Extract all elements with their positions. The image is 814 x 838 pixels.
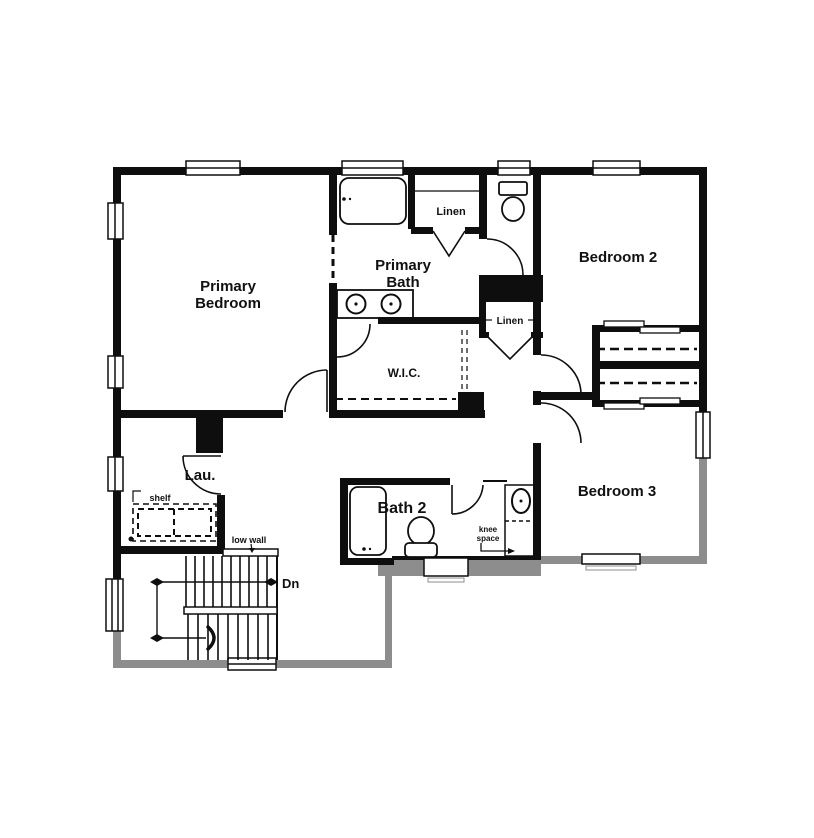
window-left-3 bbox=[108, 457, 123, 491]
window-right bbox=[696, 412, 710, 458]
bath2-door bbox=[452, 485, 483, 514]
window-sill-bedroom3 bbox=[586, 566, 636, 570]
toilet-bath2-icon bbox=[405, 517, 437, 557]
stairs-direction-chevron bbox=[208, 627, 214, 649]
bedroom3-label: Bedroom 3 bbox=[578, 483, 656, 500]
primary-bedroom-label-line1: Primary bbox=[200, 278, 257, 295]
window-top-2 bbox=[342, 161, 403, 175]
primary-bedroom-door bbox=[285, 370, 327, 412]
window-sill-below-bath2 bbox=[428, 578, 464, 582]
knee-space-label-line2: space bbox=[477, 534, 500, 543]
window-top-4 bbox=[593, 161, 640, 175]
low-wall-label: low wall bbox=[232, 535, 267, 545]
window-top-1 bbox=[186, 161, 240, 175]
floor-plan-drawing: Primary Bedroom Primary Bath Linen Bedro… bbox=[0, 0, 814, 838]
fixtures bbox=[337, 178, 537, 557]
primary-bath-label-line2: Bath bbox=[386, 274, 419, 291]
window-left-4-double bbox=[106, 579, 123, 631]
linen-top-label: Linen bbox=[436, 206, 466, 218]
laundry-shelf bbox=[129, 491, 217, 542]
primary-bedroom-label-line2: Bedroom bbox=[195, 295, 261, 312]
bedroom3-door bbox=[541, 403, 581, 443]
toilet-wc-icon bbox=[499, 182, 527, 221]
window-bedroom3-bottom bbox=[582, 554, 640, 564]
stairs-landing bbox=[184, 607, 277, 614]
knee-space-vanity-icon bbox=[505, 485, 537, 556]
knee-space-label-line1: knee bbox=[479, 525, 498, 534]
window-top-3 bbox=[498, 161, 530, 175]
wic-label: W.I.C. bbox=[388, 366, 421, 380]
stairs-down-label: Dn bbox=[282, 576, 299, 591]
wic-opening-dashed bbox=[462, 330, 467, 390]
stairs bbox=[150, 549, 278, 660]
bathtub-primary-icon bbox=[340, 178, 406, 224]
window-below-bath2 bbox=[424, 558, 468, 576]
shelf-label: shelf bbox=[149, 493, 171, 503]
linen-mid-label: Linen bbox=[497, 316, 524, 327]
double-vanity-icon bbox=[337, 290, 413, 318]
knee-space-pointer bbox=[481, 543, 515, 554]
linen-mid-doors bbox=[487, 336, 533, 359]
bedroom2-door bbox=[541, 355, 581, 393]
window-left-1 bbox=[108, 203, 123, 239]
floor-plan-page: Primary Bedroom Primary Bath Linen Bedro… bbox=[0, 0, 814, 838]
water-closet-door bbox=[487, 239, 523, 275]
bathtub-bath2-icon bbox=[350, 487, 386, 555]
bedroom2-label: Bedroom 2 bbox=[579, 249, 657, 266]
window-left-2 bbox=[108, 356, 123, 388]
linen-top-doors bbox=[433, 231, 465, 256]
primary-bath-label-line1: Primary bbox=[375, 257, 432, 274]
laundry-label: Lau. bbox=[185, 467, 216, 484]
primary-bath-door bbox=[337, 324, 370, 357]
stairs-lower-flight bbox=[188, 614, 268, 660]
bath2-label: Bath 2 bbox=[378, 500, 427, 517]
